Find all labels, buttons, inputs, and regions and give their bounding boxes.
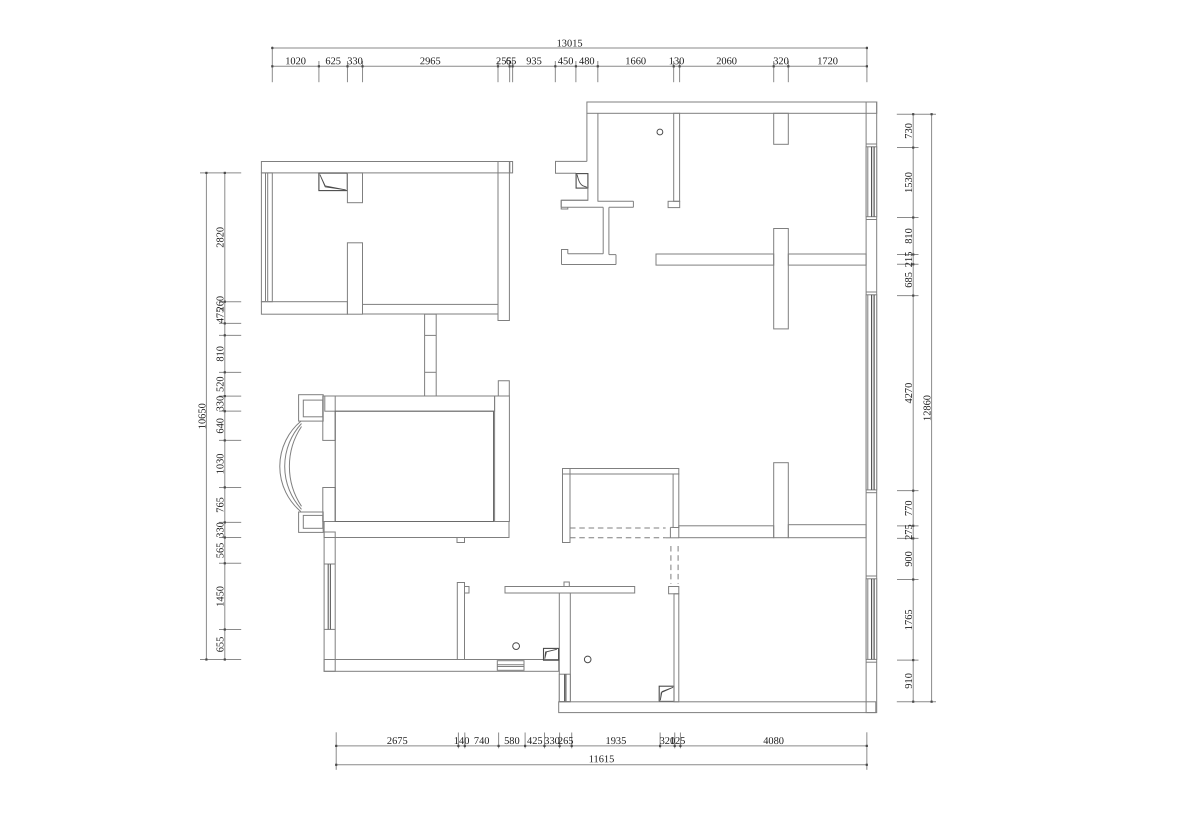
svg-text:580: 580 — [504, 736, 520, 747]
svg-text:765: 765 — [216, 497, 227, 513]
svg-text:625: 625 — [325, 56, 341, 67]
svg-text:1935: 1935 — [606, 736, 627, 747]
svg-text:320: 320 — [773, 56, 789, 67]
svg-text:655: 655 — [216, 637, 227, 653]
svg-text:1020: 1020 — [285, 56, 306, 67]
svg-text:770: 770 — [904, 500, 915, 516]
svg-text:130: 130 — [669, 56, 685, 67]
svg-text:640: 640 — [216, 418, 227, 434]
svg-text:13015: 13015 — [557, 38, 583, 49]
svg-text:425: 425 — [527, 736, 543, 747]
svg-text:520: 520 — [216, 376, 227, 392]
svg-text:935: 935 — [526, 56, 542, 67]
svg-text:140: 140 — [454, 736, 470, 747]
svg-text:1530: 1530 — [904, 172, 915, 193]
svg-text:11615: 11615 — [589, 754, 615, 765]
svg-text:330: 330 — [216, 522, 227, 538]
svg-text:480: 480 — [579, 56, 595, 67]
svg-text:1765: 1765 — [904, 609, 915, 630]
svg-text:260: 260 — [216, 296, 227, 312]
svg-text:900: 900 — [904, 551, 915, 567]
svg-text:1030: 1030 — [216, 454, 227, 475]
svg-text:125: 125 — [670, 736, 686, 747]
svg-text:12860: 12860 — [922, 395, 933, 421]
svg-text:10650: 10650 — [197, 403, 208, 429]
svg-text:330: 330 — [216, 396, 227, 412]
svg-text:910: 910 — [904, 673, 915, 689]
svg-text:450: 450 — [558, 56, 574, 67]
svg-text:265: 265 — [558, 736, 574, 747]
svg-text:2060: 2060 — [716, 56, 737, 67]
svg-text:2965: 2965 — [420, 56, 441, 67]
svg-text:810: 810 — [904, 228, 915, 244]
svg-text:2675: 2675 — [387, 736, 408, 747]
svg-text:65: 65 — [506, 56, 516, 67]
svg-text:740: 740 — [474, 736, 490, 747]
svg-text:215: 215 — [904, 252, 915, 268]
svg-text:330: 330 — [347, 56, 363, 67]
svg-text:4270: 4270 — [904, 383, 915, 404]
svg-text:685: 685 — [904, 272, 915, 288]
svg-text:275: 275 — [904, 524, 915, 540]
svg-text:1720: 1720 — [817, 56, 838, 67]
svg-text:1660: 1660 — [625, 56, 646, 67]
svg-text:810: 810 — [216, 346, 227, 362]
svg-text:730: 730 — [904, 123, 915, 139]
svg-text:4080: 4080 — [763, 736, 784, 747]
svg-text:1450: 1450 — [216, 586, 227, 607]
svg-text:2820: 2820 — [216, 227, 227, 248]
svg-text:565: 565 — [216, 543, 227, 559]
